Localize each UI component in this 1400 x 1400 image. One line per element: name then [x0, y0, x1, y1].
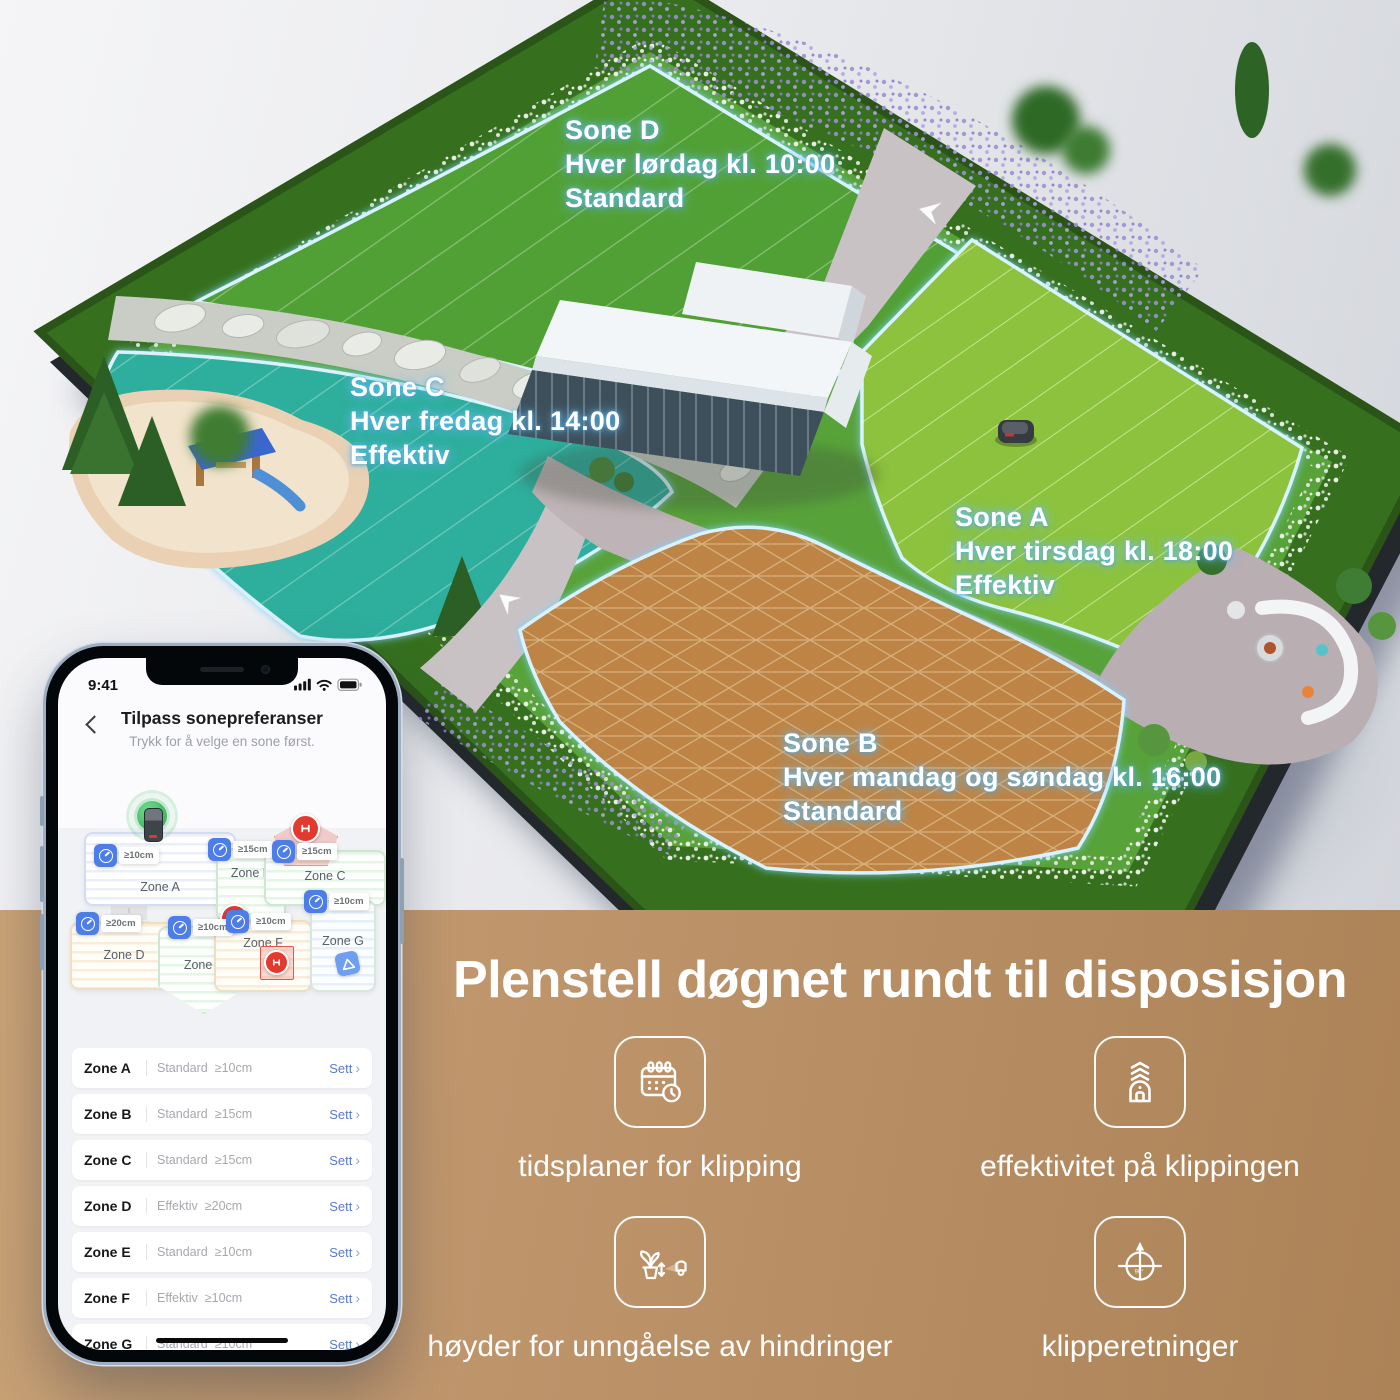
map-robot-icon — [144, 808, 163, 842]
zone-schedule: Hver lørdag kl. 10:00 — [565, 147, 835, 181]
gauge-icon — [94, 844, 117, 867]
zone-label-sone-b: Sone B Hver mandag og søndag kl. 16:00 S… — [783, 726, 1221, 828]
height-value: ≥10cm — [329, 893, 369, 910]
set-button[interactable]: Sett› — [329, 1244, 360, 1260]
zone-row-e[interactable]: Zone E Standard ≥10cm Sett› — [72, 1232, 372, 1272]
obstacle-height-icon — [614, 1216, 706, 1308]
set-button[interactable]: Sett› — [329, 1152, 360, 1168]
height-tag: ≥10cm — [94, 844, 159, 867]
zone-name: Zone D — [84, 1198, 146, 1214]
phone-mockup: 9:41 — [46, 646, 398, 1362]
zone-list: Zone A Standard ≥10cm Sett› Zone B Stand… — [58, 1048, 386, 1350]
height-value: ≥10cm — [251, 913, 291, 930]
zone-row-a[interactable]: Zone A Standard ≥10cm Sett› — [72, 1048, 372, 1088]
feature-label: tidsplaner for klipping — [518, 1150, 802, 1184]
promo-headline: Plenstell døgnet rundt til disposisjon — [420, 950, 1380, 1010]
height-tag: ≥10cm — [304, 890, 369, 913]
feature-schedules: tidsplaner for klipping — [420, 1036, 900, 1184]
zone-schedule: Hver tirsdag kl. 18:00 — [955, 534, 1233, 568]
chevron-right-icon: › — [355, 1244, 360, 1260]
feature-obstacle-height: høyder for unngåelse av hindringer — [420, 1216, 900, 1364]
no-go-icon — [291, 814, 320, 843]
zone-name: Sone D — [565, 113, 835, 147]
height-tag: ≥15cm — [208, 838, 273, 861]
zone-row-b[interactable]: Zone B Standard ≥15cm Sett› — [72, 1094, 372, 1134]
gauge-icon — [272, 840, 295, 863]
divider — [146, 1152, 147, 1168]
gauge-icon — [304, 890, 327, 913]
chevron-right-icon: › — [355, 1152, 360, 1168]
chevron-right-icon: › — [355, 1060, 360, 1076]
angle-label: 90° — [1135, 1270, 1145, 1276]
chevron-right-icon: › — [355, 1290, 360, 1306]
divider — [146, 1198, 147, 1214]
height-tag: ≥20cm — [76, 912, 141, 935]
zone-mode: Standard — [157, 1153, 208, 1167]
zone-name: Sone C — [350, 370, 620, 404]
gauge-icon — [76, 912, 99, 935]
zone-mode: Effektiv — [955, 568, 1233, 602]
chevron-right-icon: › — [355, 1106, 360, 1122]
zone-row-g[interactable]: Zone G Standard ≥10cm Sett› — [72, 1324, 372, 1350]
height-tag: ≥10cm — [168, 916, 233, 939]
divider — [146, 1244, 147, 1260]
height-value: ≥15cm — [233, 841, 273, 858]
zone-mode: Effektiv — [157, 1291, 198, 1305]
zone-schedule: Hver mandag og søndag kl. 16:00 — [783, 760, 1221, 794]
home-indicator[interactable] — [156, 1338, 288, 1343]
divider — [146, 1106, 147, 1122]
set-button[interactable]: Sett› — [329, 1290, 360, 1306]
set-button[interactable]: Sett› — [329, 1060, 360, 1076]
height-value: ≥15cm — [297, 843, 337, 860]
feature-label: klipperetninger — [1042, 1330, 1239, 1364]
no-go-icon — [264, 950, 289, 975]
zone-row-f[interactable]: Zone F Effektiv ≥10cm Sett› — [72, 1278, 372, 1318]
power-button — [400, 858, 404, 944]
feature-label: effektivitet på klippingen — [980, 1150, 1300, 1184]
robot-mower-icon — [995, 420, 1037, 447]
zone-name: Zone E — [84, 1244, 146, 1260]
gauge-icon — [208, 838, 231, 861]
zone-name: Zone G — [84, 1336, 146, 1350]
map-zone-label: Zone C — [266, 869, 384, 883]
phone-notch — [146, 658, 298, 685]
zone-name: Zone A — [84, 1060, 146, 1076]
status-icons — [294, 678, 362, 692]
zone-height: ≥10cm — [215, 1061, 252, 1075]
height-tag: ≥10cm — [226, 910, 291, 933]
zone-height: ≥20cm — [205, 1199, 242, 1213]
zone-height: ≥10cm — [215, 1245, 252, 1259]
divider — [146, 1060, 147, 1076]
zone-mode: Effektiv — [350, 438, 620, 472]
height-value: ≥10cm — [119, 847, 159, 864]
zone-mode: Standard — [157, 1245, 208, 1259]
gauge-icon — [226, 910, 249, 933]
set-button[interactable]: Sett› — [329, 1198, 360, 1214]
set-button[interactable]: Sett› — [329, 1106, 360, 1122]
page-subtitle: Trykk for å velge en sone først. — [58, 734, 386, 749]
mower-efficiency-icon — [1094, 1036, 1186, 1128]
zone-label-sone-d: Sone D Hver lørdag kl. 10:00 Standard — [565, 113, 835, 215]
zone-mode: Standard — [783, 794, 1221, 828]
chevron-right-icon: › — [355, 1198, 360, 1214]
battery-icon — [338, 679, 362, 690]
volume-up-button — [40, 846, 44, 902]
zone-name: Sone A — [955, 500, 1233, 534]
map-zone-label: Zone A — [86, 880, 234, 894]
zone-name: Zone F — [84, 1290, 146, 1306]
height-tag: ≥15cm — [272, 840, 337, 863]
calendar-clock-icon — [614, 1036, 706, 1128]
app-header: Tilpass sonepreferanser Trykk for å velg… — [58, 708, 386, 749]
mute-switch — [40, 796, 44, 826]
speaker — [200, 667, 244, 672]
gauge-icon — [168, 916, 191, 939]
zone-name: Zone C — [84, 1152, 146, 1168]
feature-label: høyder for unngåelse av hindringer — [427, 1330, 892, 1364]
zone-name: Sone B — [783, 726, 1221, 760]
feature-grid: tidsplaner for klipping effektivitet på … — [420, 1036, 1380, 1364]
wifi-icon — [318, 681, 331, 691]
set-button[interactable]: Sett› — [329, 1336, 360, 1350]
page-title: Tilpass sonepreferanser — [58, 708, 386, 729]
signal-icon — [294, 679, 311, 691]
map-zone-g[interactable]: Zone G — [310, 900, 376, 992]
divider — [146, 1290, 147, 1306]
zone-label-sone-a: Sone A Hver tirsdag kl. 18:00 Effektiv — [955, 500, 1233, 602]
divider — [146, 1336, 147, 1350]
zone-mode: Standard — [157, 1107, 208, 1121]
zone-row-d[interactable]: Zone D Effektiv ≥20cm Sett› — [72, 1186, 372, 1226]
zone-mode: Effektiv — [157, 1199, 198, 1213]
zone-label-sone-c: Sone C Hver fredag kl. 14:00 Effektiv — [350, 370, 620, 472]
zone-row-c[interactable]: Zone C Standard ≥15cm Sett› — [72, 1140, 372, 1180]
zone-mode: Standard — [157, 1061, 208, 1075]
feature-efficiency: effektivitet på klippingen — [900, 1036, 1380, 1184]
back-chevron-icon — [85, 715, 103, 733]
volume-down-button — [40, 914, 44, 970]
zone-schedule: Hver fredag kl. 14:00 — [350, 404, 620, 438]
status-time: 9:41 — [88, 677, 118, 694]
zone-name: Zone B — [84, 1106, 146, 1122]
zone-height: ≥15cm — [215, 1153, 252, 1167]
height-value: ≥20cm — [101, 915, 141, 932]
chevron-right-icon: › — [355, 1336, 360, 1350]
zone-height: ≥10cm — [205, 1291, 242, 1305]
feature-directions: 90° klipperetninger — [900, 1216, 1380, 1364]
zone-height: ≥15cm — [215, 1107, 252, 1121]
mow-direction-icon: 90° — [1094, 1216, 1186, 1308]
map-zone-label: Zone G — [312, 934, 374, 948]
back-button[interactable] — [82, 714, 104, 736]
front-camera — [261, 665, 270, 674]
phone-screen: 9:41 — [58, 658, 386, 1350]
zone-mode: Standard — [565, 181, 835, 215]
